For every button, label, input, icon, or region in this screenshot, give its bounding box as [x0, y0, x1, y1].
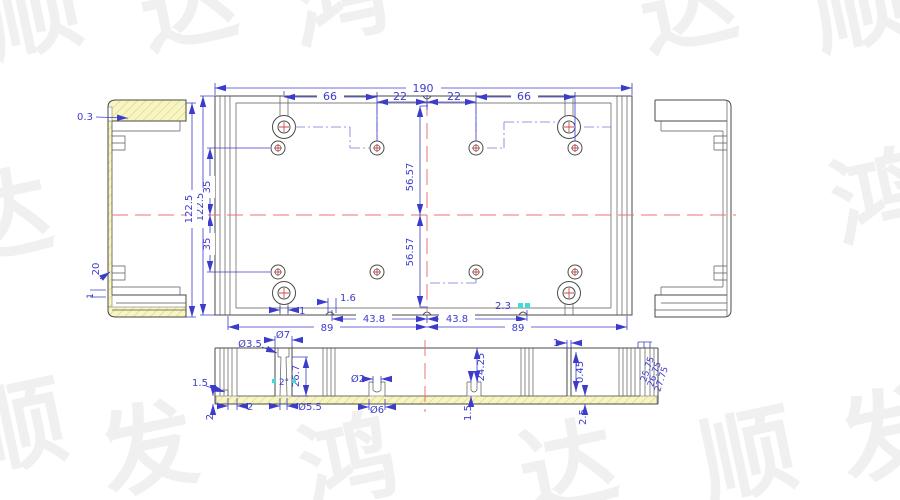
phantom-lines — [295, 104, 611, 283]
side-view-dimensions: 122.5 0.3 20 1 — [77, 103, 197, 317]
screw-boss — [558, 282, 581, 316]
side-view-right — [655, 100, 731, 317]
dim-bore-small: Ø3.5 — [238, 338, 262, 350]
dim-floor-thickness: 2.5 — [578, 409, 589, 425]
dim-lip-thickness: 0.3 — [77, 112, 93, 123]
section-view — [215, 348, 658, 404]
dim-channel-height: 1.5 — [463, 405, 474, 421]
boss-channel-section — [275, 348, 292, 396]
dim-boss-span-left: 66 — [323, 90, 337, 103]
dim-base-span-left: 89 — [321, 323, 334, 334]
dim-wall-offset: 1 — [86, 293, 96, 299]
dim-hole-offset-lower: 35 — [202, 238, 213, 251]
centerlines — [112, 100, 736, 412]
cad-drawing-page: 顺 达 鸿 达 顺 达 鸿 顺 发 鸿 达 顺 发 — [0, 0, 900, 500]
dim-wall-thickness: 1 — [553, 338, 559, 349]
dim-base-span-right: 89 — [512, 323, 525, 334]
dim-side-overall-height: 122.5 — [184, 195, 195, 224]
dim-edge-notch: 1.5 — [192, 378, 208, 389]
dim-edge-height: 2 — [205, 414, 216, 420]
dim-hole-offset-upper: 35 — [202, 181, 213, 194]
dim-counterbore: Ø7 — [276, 329, 290, 341]
section-view-dimensions: Ø7 Ø3.5 26.7 2° Ø5.5 Ø2 Ø6 — [192, 329, 671, 425]
dim-center-offset-right: 22 — [447, 90, 461, 103]
side-view-left — [108, 100, 186, 317]
dim-bore-large: Ø5.5 — [298, 401, 322, 413]
dim-center-offset-left: 22 — [393, 90, 407, 103]
dim-wall-gap: 0.45 — [575, 361, 586, 383]
dim-draft-angle: 2° — [279, 378, 289, 388]
dim-notch-right: 2.3 — [495, 301, 511, 312]
dim-diagonal-lower: 56.57 — [405, 238, 416, 267]
screw-boss — [558, 96, 581, 139]
dim-overall-width: 190 — [413, 82, 434, 95]
dim-half-span-right: 43.8 — [446, 314, 468, 325]
dim-clip-offset: 20 — [91, 263, 102, 276]
dim-stem-width: 1 — [299, 306, 305, 317]
dim-diagonal-upper: 56.57 — [405, 163, 416, 192]
dim-boss-span-right: 66 — [517, 90, 531, 103]
dim-half-span-left: 43.8 — [363, 314, 385, 325]
dim-notch-left: 1.6 — [340, 293, 356, 304]
plan-view — [215, 96, 632, 315]
dim-channel-od: Ø6 — [370, 404, 384, 416]
dim-channel-bore: Ø2 — [351, 373, 365, 385]
dim-rib-height: 24.25 — [476, 353, 487, 382]
plan-view-dimensions: 190 66 66 22 22 122.5 35 35 56.57 56.57 … — [195, 82, 632, 334]
dim-boss-depth: 26.7 — [291, 365, 302, 387]
screw-boss — [273, 96, 296, 139]
dim-edge-width: 2 — [247, 402, 253, 413]
technical-drawing-canvas: 190 66 66 22 22 122.5 35 35 56.57 56.57 … — [0, 0, 900, 500]
